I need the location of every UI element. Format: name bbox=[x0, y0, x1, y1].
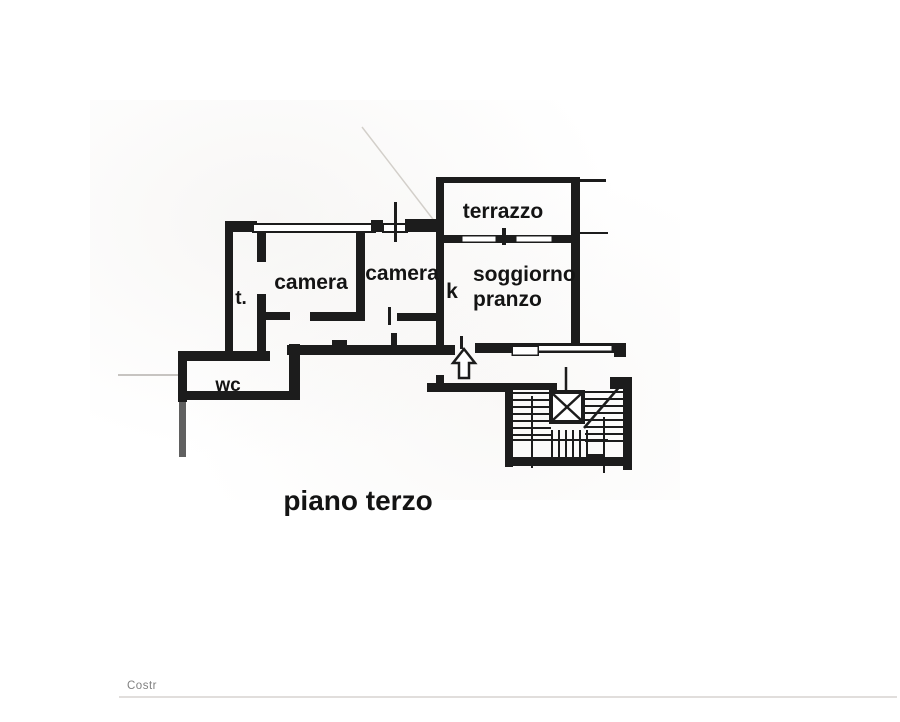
scan-crease-line bbox=[362, 127, 442, 231]
elevator-shaft-icon bbox=[551, 367, 583, 422]
room-label-t: t. bbox=[235, 288, 247, 309]
stair-treads-bottom bbox=[552, 430, 587, 457]
floor-plan: terrazzo camera camera k soggiorno pranz… bbox=[0, 0, 900, 722]
room-label-terrazzo: terrazzo bbox=[463, 200, 544, 223]
room-label-wc: wc bbox=[214, 375, 241, 396]
footer-partial-text: Costr bbox=[127, 680, 157, 692]
room-label-soggiorno: soggiorno bbox=[473, 263, 576, 286]
extension-line-left bbox=[118, 374, 180, 376]
room-label-kitchen: k bbox=[446, 280, 458, 303]
floor-caption: piano terzo bbox=[283, 485, 432, 516]
room-label-camera-right: camera bbox=[365, 262, 439, 285]
room-label-pranzo: pranzo bbox=[473, 288, 542, 311]
room-label-camera-left: camera bbox=[274, 271, 348, 294]
entrance-arrow-icon bbox=[453, 349, 475, 378]
staircase bbox=[427, 367, 632, 473]
scanned-floor-plan-page: terrazzo camera camera k soggiorno pranz… bbox=[0, 0, 900, 722]
